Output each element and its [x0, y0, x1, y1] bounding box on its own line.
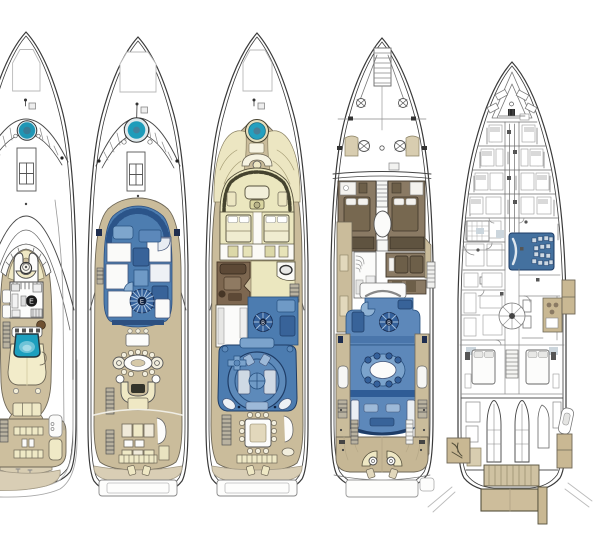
svg-text:B: B — [261, 320, 265, 326]
svg-text:E: E — [29, 299, 34, 306]
svg-text:E: E — [140, 299, 144, 305]
svg-text:B: B — [387, 320, 391, 326]
